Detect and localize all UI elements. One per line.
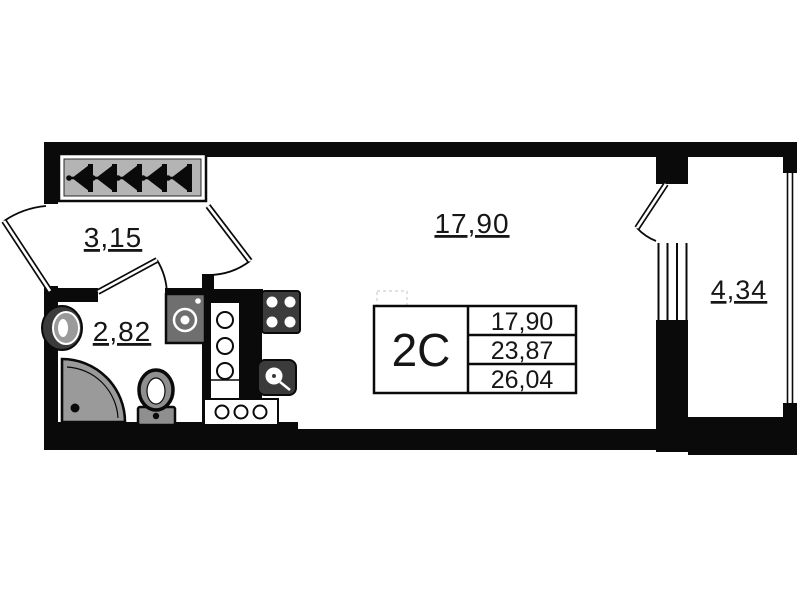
kitchen-sink-icon — [258, 360, 296, 395]
wardrobe — [59, 154, 206, 201]
living-room-door — [208, 206, 250, 275]
entrance-door — [4, 206, 50, 291]
living-room-area-label: 17,90 — [434, 208, 509, 239]
floor-plan: 3,15 2,82 17,90 4,34 2C 17,90 23,87 26,0… — [0, 0, 799, 600]
vent-shaft-vertical — [210, 302, 240, 402]
shower-drain — [71, 404, 80, 413]
balcony-area-label: 4,34 — [711, 275, 768, 305]
living-room-door-arc — [208, 261, 250, 275]
corner-shower-icon — [62, 359, 125, 422]
vent-shaft-horizontal — [204, 399, 278, 425]
unit-area-with-balcony: 26,04 — [491, 366, 554, 394]
wall-balcony-pillar — [656, 157, 688, 184]
bathroom-fixtures — [42, 294, 205, 425]
unit-type-label: 2C — [392, 324, 451, 376]
balcony-door — [637, 184, 666, 241]
wall-balcony-lower — [656, 320, 688, 452]
wall-balcony-corner-bottom-right — [783, 403, 797, 455]
wall-balcony-bottom — [688, 417, 797, 455]
bathroom-area-label: 2,82 — [93, 316, 152, 347]
balcony-window — [659, 243, 687, 321]
washbasin-icon — [42, 306, 82, 350]
washing-machine-icon — [166, 294, 205, 343]
wall-bathroom-top-left — [44, 288, 98, 302]
toilet-icon — [138, 370, 175, 425]
stove-icon — [262, 291, 300, 333]
unit-info-box: 2C 17,90 23,87 26,04 — [374, 291, 576, 394]
unit-area-living: 17,90 — [491, 308, 554, 336]
wall-balcony-corner-top-right — [783, 157, 797, 173]
wall-left-upper — [44, 142, 58, 204]
entrance-door-arc — [4, 206, 46, 221]
bathroom-door — [98, 260, 167, 295]
balcony-glazing — [788, 172, 793, 404]
balcony-door-arc — [637, 228, 656, 241]
unit-area-total: 23,87 — [491, 337, 554, 365]
hallway-area-label: 3,15 — [84, 222, 143, 253]
wall-bottom-main — [290, 429, 690, 450]
